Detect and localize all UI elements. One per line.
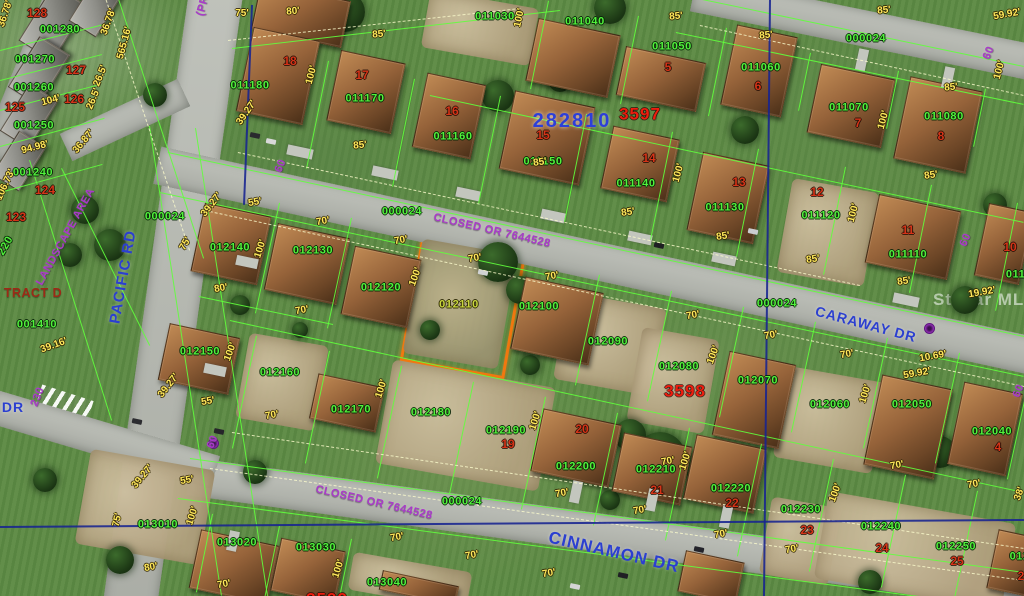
dimension-label: 38' bbox=[1013, 486, 1024, 502]
vehicle bbox=[250, 132, 261, 139]
lot-number-label: 23 bbox=[800, 524, 813, 536]
parcel-id-label: 012240 bbox=[861, 522, 901, 533]
lot-number-label: 124 bbox=[35, 184, 55, 196]
parcel-id-label: 01110 bbox=[1006, 270, 1024, 281]
vehicle bbox=[570, 583, 581, 590]
lot-number-label: 4 bbox=[995, 441, 1002, 453]
lot-number-label: 11 bbox=[902, 224, 915, 236]
dimension-label: 80' bbox=[213, 283, 228, 295]
parcel-map-canvas[interactable]: Stellar MLS 0110300110400110500110600110… bbox=[0, 0, 1024, 596]
parcel-id-label: 011040 bbox=[565, 17, 605, 28]
parcel-id-label: 001260 bbox=[14, 83, 54, 94]
parcel-id-label: 011160 bbox=[433, 132, 472, 143]
parcel-id-label: 012110 bbox=[439, 300, 479, 311]
parcel-id-label: 220 bbox=[0, 235, 16, 258]
dimension-label: 85' bbox=[806, 254, 821, 266]
lot-number-label: 12 bbox=[810, 186, 823, 198]
dimension-label: 100' bbox=[305, 64, 320, 85]
road-parcel-id-label: 000024 bbox=[846, 34, 886, 45]
parcel-id-label: 012070 bbox=[738, 376, 778, 387]
dimension-label: 70' bbox=[839, 349, 854, 361]
parcel-id-label: 013020 bbox=[217, 538, 257, 549]
street-name-label: DR bbox=[2, 400, 24, 414]
lot-number-label: 20 bbox=[575, 423, 588, 435]
parcel-line bbox=[199, 296, 333, 325]
lot-number-label: 128 bbox=[27, 7, 47, 19]
dimension-label: 85' bbox=[372, 29, 386, 40]
lot-number-label: 19 bbox=[501, 438, 514, 450]
parcel-id-label: 012120 bbox=[361, 283, 401, 294]
dimension-label: 70' bbox=[966, 479, 981, 491]
dimension-label: 26.5' bbox=[85, 87, 102, 111]
dimension-label: 85' bbox=[924, 170, 939, 182]
dimension-label: 70' bbox=[541, 568, 556, 580]
parcel-id-label: 012050 bbox=[892, 400, 932, 411]
parcel-id-label: 012130 bbox=[293, 246, 333, 257]
parcel-id-label: 012200 bbox=[556, 462, 596, 473]
parcel-id-label: 012080 bbox=[659, 362, 699, 373]
parcel-id-label: 012250 bbox=[936, 542, 976, 553]
dimension-label: 70' bbox=[544, 271, 559, 283]
dimension-label: 70' bbox=[554, 488, 569, 500]
parcel-id-label: 012170 bbox=[331, 405, 371, 416]
lot-number-label: 25 bbox=[950, 555, 963, 567]
tree bbox=[520, 355, 540, 375]
lot-number-label: 13 bbox=[732, 176, 745, 188]
dimension-label: 100' bbox=[993, 59, 1008, 80]
dimension-label: 10.69' bbox=[919, 350, 948, 365]
dimension-label: 85' bbox=[621, 207, 636, 219]
plat-annotation-label: 60 bbox=[958, 232, 973, 248]
lot-number-label: 7 bbox=[855, 117, 862, 129]
parcel-id-label: 012180 bbox=[411, 408, 451, 419]
house bbox=[530, 408, 622, 487]
dimension-label: 85' bbox=[716, 231, 731, 243]
tract-label: TRACT D bbox=[4, 287, 62, 300]
lot-number-label: 22 bbox=[725, 497, 738, 509]
vacant-lot bbox=[626, 326, 719, 433]
road-parcel-id-label: 000024 bbox=[757, 299, 797, 310]
dimension-label: 85' bbox=[759, 30, 773, 41]
parcel-id-label: 001250 bbox=[14, 121, 54, 132]
parcel-id-label: 012090 bbox=[588, 337, 628, 348]
house bbox=[893, 76, 983, 174]
plat-id-label: 282810 bbox=[533, 111, 612, 131]
dimension-label: 70' bbox=[294, 305, 309, 317]
dimension-label: 59.92' bbox=[993, 8, 1022, 23]
house bbox=[264, 223, 351, 305]
parcel-id-label: 011050 bbox=[652, 42, 692, 53]
lot-number-label: 21 bbox=[650, 484, 663, 496]
parcel-id-label: 012100 bbox=[519, 302, 559, 313]
lot-number-label: 5 bbox=[665, 61, 672, 73]
parcel-id-label: 011060 bbox=[741, 63, 781, 74]
dimension-label: 100' bbox=[672, 162, 687, 183]
parcel-id-label: 011130 bbox=[705, 203, 744, 214]
road-parcel-id-label: 000024 bbox=[145, 212, 185, 223]
lot-number-label: 123 bbox=[6, 211, 26, 223]
tree bbox=[420, 320, 440, 340]
lot-number-label: 14 bbox=[642, 152, 655, 164]
dimension-label: 70' bbox=[632, 505, 647, 517]
lot-number-label: 126 bbox=[64, 93, 84, 105]
parcel-id-label: 012140 bbox=[210, 243, 250, 254]
parcel-id-label: 012040 bbox=[972, 427, 1012, 438]
parcel-id-label: 012190 bbox=[486, 426, 526, 437]
vehicle bbox=[214, 428, 225, 435]
dimension-label: 55' bbox=[247, 197, 262, 209]
parcel-id-label: 011170 bbox=[345, 94, 384, 105]
house bbox=[600, 126, 680, 203]
dimension-label: 36.78' bbox=[0, 0, 15, 29]
lot-number-label: 2 bbox=[1018, 570, 1024, 582]
lot-number-label: 18 bbox=[283, 55, 296, 67]
dimension-label: 70' bbox=[389, 532, 404, 544]
dimension-label: 85' bbox=[669, 11, 683, 22]
parcel-id-label: 011070 bbox=[829, 103, 869, 114]
dimension-label: 70' bbox=[464, 550, 479, 562]
parcel-id-label: 012220 bbox=[711, 484, 751, 495]
parcel-id-label: 012060 bbox=[810, 400, 850, 411]
parcel-id-label: 012150 bbox=[180, 347, 220, 358]
parcel-id-label: 001410 bbox=[17, 320, 57, 331]
parcel-line bbox=[478, 96, 501, 204]
lot-number-label: 17 bbox=[355, 69, 368, 81]
lot-number-label: 125 bbox=[5, 101, 25, 113]
driveway bbox=[892, 292, 920, 307]
dimension-label: 70' bbox=[763, 330, 778, 342]
survey-symbol bbox=[924, 323, 935, 334]
block-number-label: 3597 bbox=[619, 106, 661, 123]
parcel-id-label: 012230 bbox=[781, 505, 821, 516]
parcel-id-label: 011180 bbox=[230, 81, 269, 92]
parcel-id-label: 013010 bbox=[138, 520, 178, 531]
parcel-id-label: 011140 bbox=[616, 179, 655, 190]
dimension-label: 59.92' bbox=[903, 367, 932, 382]
parcel-id-label: 0122 bbox=[1010, 552, 1024, 563]
dimension-label: 85' bbox=[877, 5, 891, 16]
dimension-label: 55' bbox=[200, 396, 215, 408]
parcel-id-label: 001270 bbox=[15, 55, 55, 66]
vehicle bbox=[618, 572, 629, 579]
parcel-id-label: 011080 bbox=[924, 112, 964, 123]
parcel-id-label: 011120 bbox=[801, 211, 840, 222]
parcel-id-label: 001280 bbox=[40, 25, 80, 36]
house bbox=[525, 18, 620, 98]
parcel-line bbox=[798, 53, 811, 111]
dimension-label: 26.5' bbox=[92, 64, 109, 88]
road-parcel-id-label: 000024 bbox=[442, 497, 482, 508]
dimension-label: 75' bbox=[235, 9, 249, 19]
parcel-id-label: 011030 bbox=[475, 12, 515, 23]
dimension-label: 100' bbox=[877, 109, 892, 130]
parcel-id-label: 013030 bbox=[296, 543, 336, 554]
parcel-id-label: 012160 bbox=[260, 368, 300, 379]
dimension-label: 85' bbox=[353, 140, 367, 151]
dimension-label: 70' bbox=[315, 216, 330, 228]
lot-number-label: 16 bbox=[445, 105, 458, 117]
lot-number-label: 6 bbox=[755, 80, 762, 92]
dimension-label: 70' bbox=[685, 310, 700, 322]
tree bbox=[106, 546, 134, 574]
lot-number-label: 8 bbox=[938, 130, 945, 142]
lot-number-label: 127 bbox=[66, 64, 86, 76]
house bbox=[865, 194, 962, 280]
tree bbox=[731, 116, 759, 144]
parcel-id-label: 013040 bbox=[367, 578, 407, 589]
lot-number-label: 10 bbox=[1003, 241, 1016, 253]
vehicle bbox=[266, 138, 277, 145]
parcel-id-label: 001240 bbox=[13, 168, 53, 179]
dimension-label: 104' bbox=[40, 94, 61, 109]
plat-annotation-label: 60 bbox=[205, 434, 220, 450]
lot-number-label: 24 bbox=[875, 542, 888, 554]
tree bbox=[600, 490, 620, 510]
dimension-label: 85' bbox=[897, 276, 912, 288]
vacant-lot bbox=[814, 491, 1016, 596]
dimension-label: 85' bbox=[533, 157, 548, 169]
dimension-label: 80' bbox=[286, 6, 300, 17]
road-parcel-id-label: 000024 bbox=[382, 207, 422, 218]
block-number-label: 3599 bbox=[306, 591, 348, 596]
dimension-label: 565.16' bbox=[116, 26, 134, 60]
dimension-label: 39.16' bbox=[39, 337, 68, 356]
plat-annotation-label: LANDSCAPE AREA bbox=[35, 187, 98, 288]
tree bbox=[33, 468, 57, 492]
parcel-id-label: 011110 bbox=[889, 250, 928, 261]
block-number-label: 3598 bbox=[664, 383, 706, 400]
dimension-label: 85' bbox=[944, 82, 958, 93]
